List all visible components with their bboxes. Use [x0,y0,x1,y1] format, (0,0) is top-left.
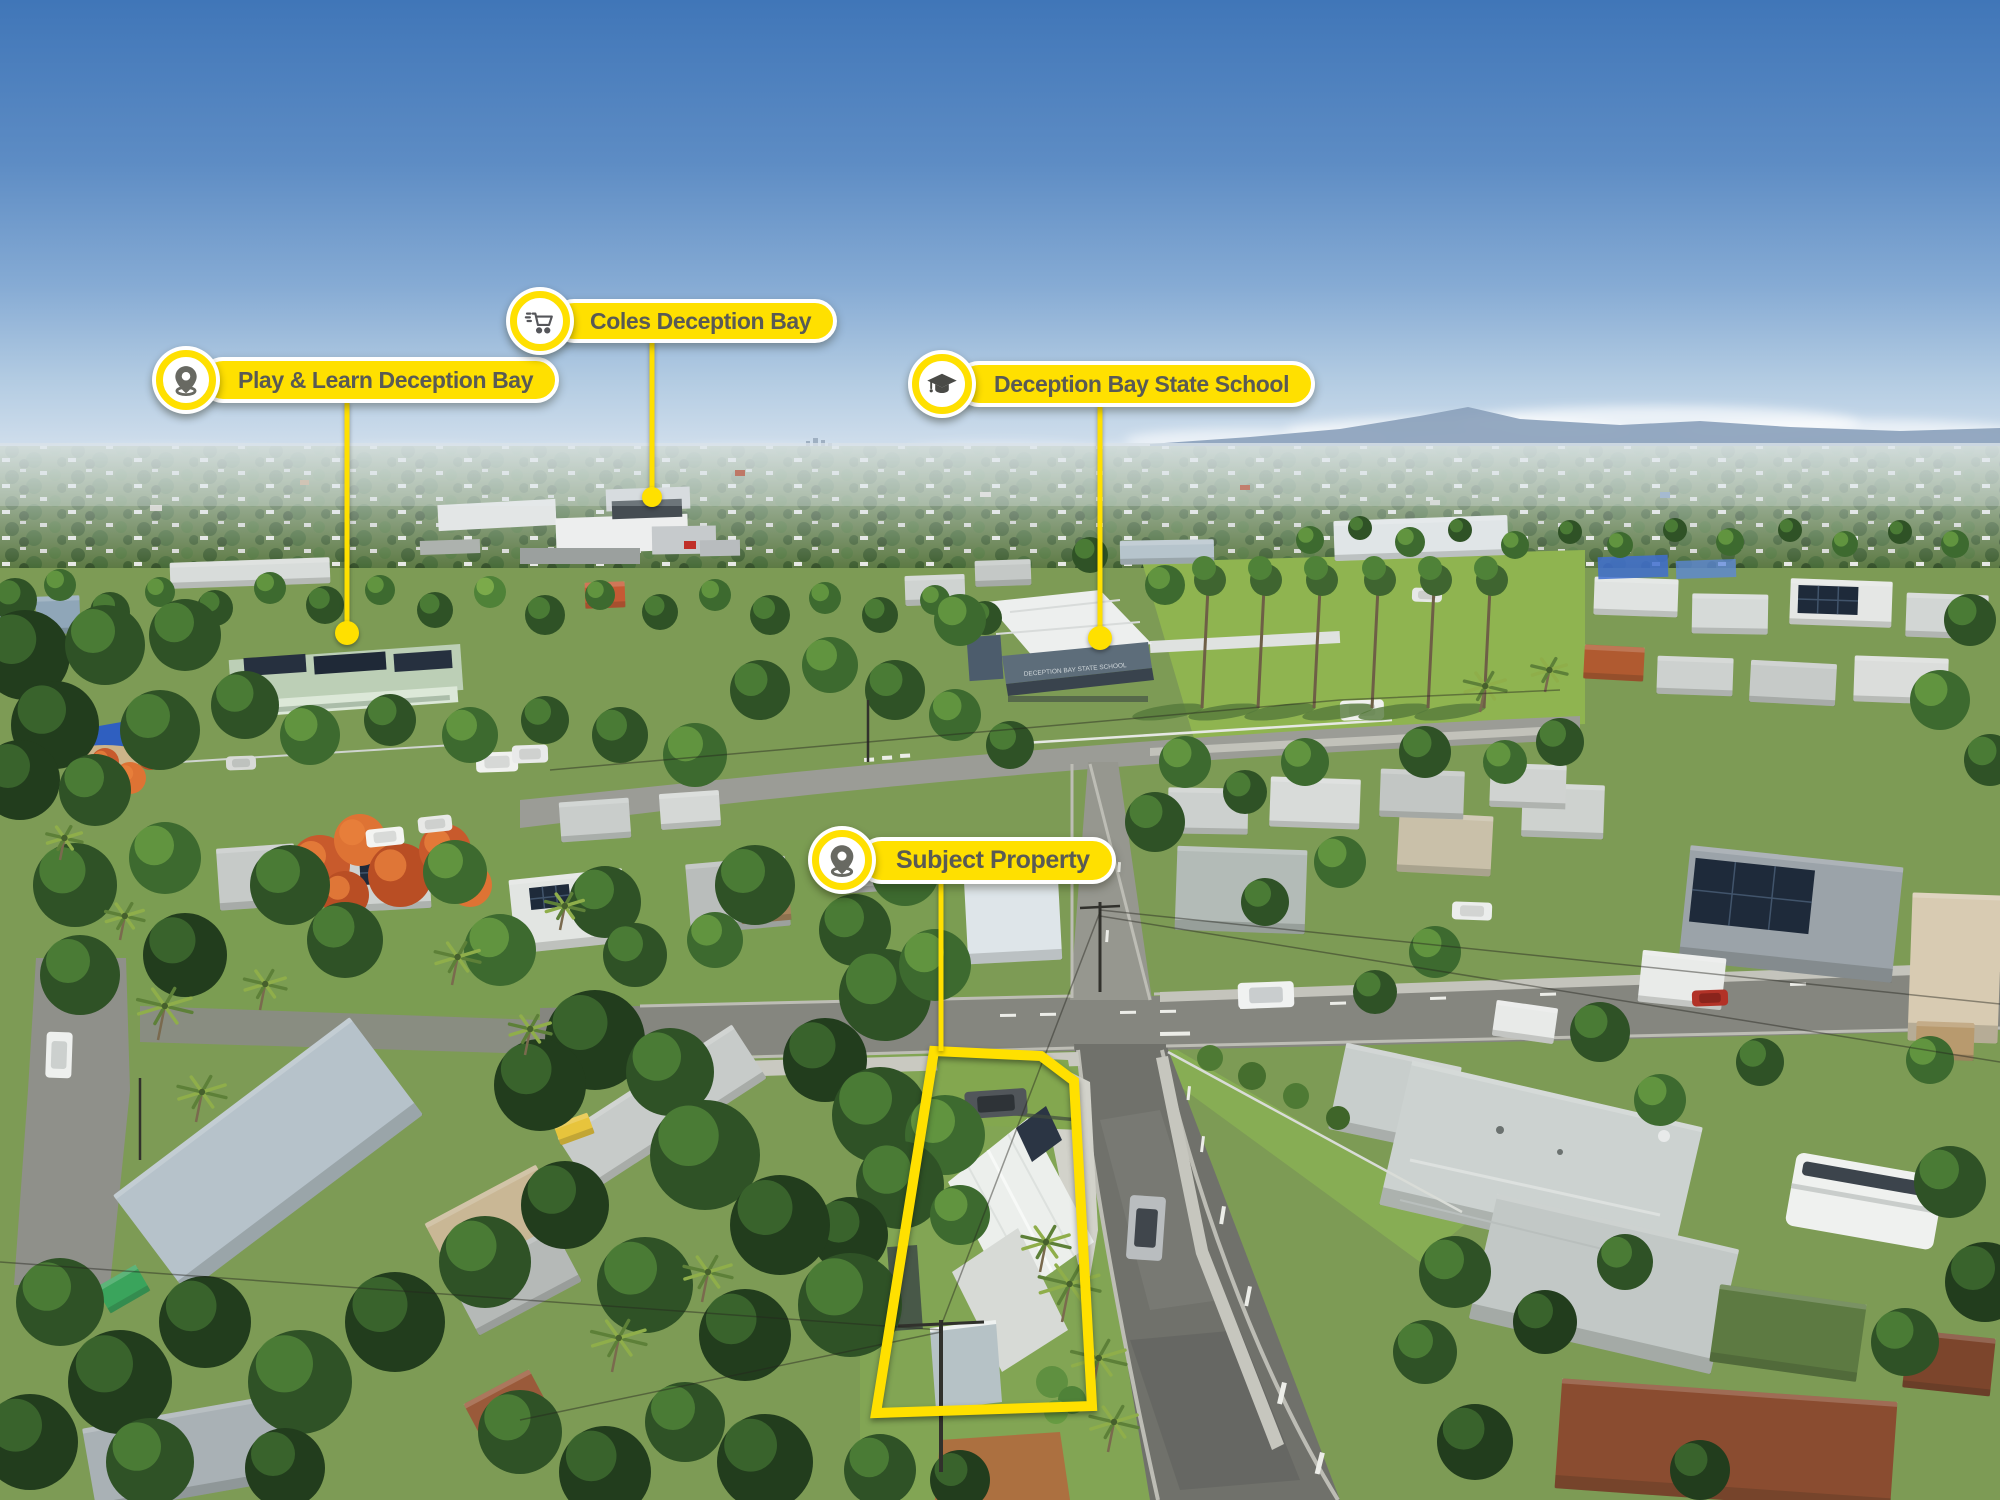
marker-pill-play-learn: Play & Learn Deception Bay [200,357,559,403]
leader-dot-school [1088,626,1112,650]
aerial-photo: DECEPTION BAY STATE SCHOOL [0,0,2000,1500]
sky [0,0,2000,502]
marker-pill-school: Deception Bay State School [956,361,1315,407]
map-pin-icon [808,826,876,894]
aerial-photo-stage: DECEPTION BAY STATE SCHOOL [0,0,2000,1500]
marker-pill-subject-property: Subject Property [858,837,1116,884]
leader-dot-coles [642,487,662,507]
marker-label: Coles Deception Bay [590,308,811,335]
shopping-cart-icon [506,287,574,355]
marker-label: Play & Learn Deception Bay [238,367,533,394]
leader-dot-play-learn [335,621,359,645]
graduation-cap-icon [908,350,976,418]
marker-pill-coles: Coles Deception Bay [552,299,837,343]
map-pin-icon [152,346,220,414]
marker-label: Deception Bay State School [994,371,1289,398]
marker-label: Subject Property [896,846,1090,875]
blue-tarps [1598,555,1669,579]
coles-store-sign [684,541,696,549]
